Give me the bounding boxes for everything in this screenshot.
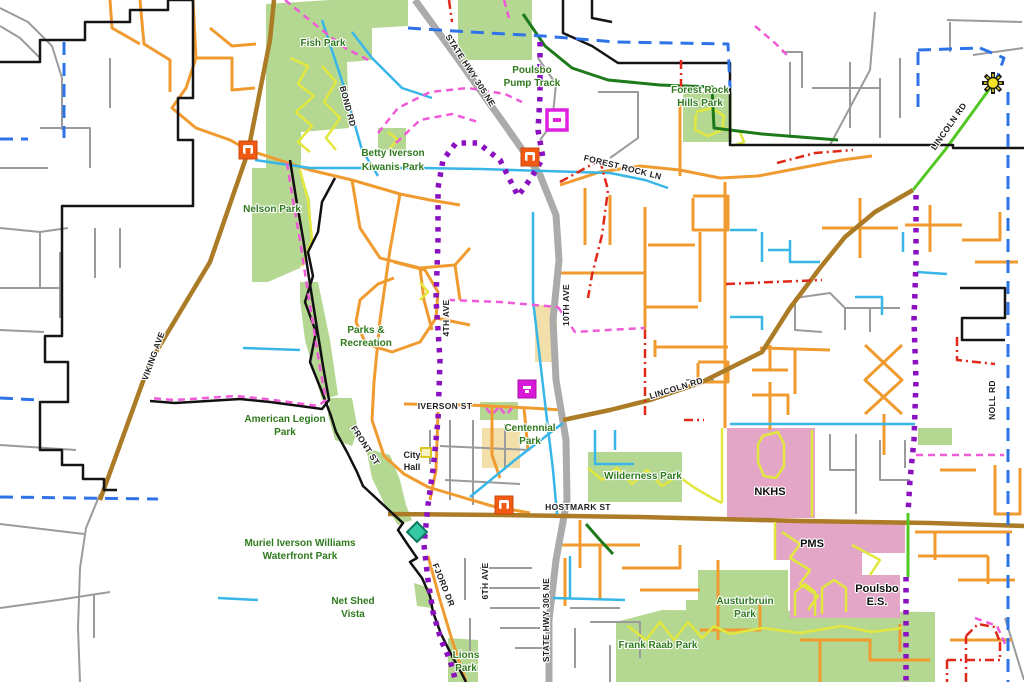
map-label-10th-ave: 10TH AVE <box>561 284 571 326</box>
map-label-pump-track: Pump Track <box>504 78 561 89</box>
map-label-city: City <box>403 450 420 460</box>
map-label-park: Park <box>734 609 756 620</box>
map-label-park: Park <box>455 663 477 674</box>
map-label-wilderness-park: Wilderness Park <box>604 471 682 482</box>
map-label-betty-iverson: Betty Iverson <box>361 148 424 159</box>
map-label-front-st: FRONT ST <box>349 424 382 468</box>
map-label-frank-raab-park: Frank Raab Park <box>619 640 698 651</box>
map-label-parks-: Parks & <box>347 325 384 336</box>
map-label-poulsbo: Poulsbo <box>855 583 899 595</box>
map-canvas: Fish ParkPoulsboPump TrackForest RockHil… <box>0 0 1024 682</box>
map-label-pms: PMS <box>800 538 824 550</box>
sun-icon <box>982 72 1004 94</box>
map-label-waterfront-park: Waterfront Park <box>263 551 338 562</box>
map-label-recreation: Recreation <box>340 338 392 349</box>
map-label-net-shed: Net Shed <box>331 596 374 607</box>
map-label-muriel-iverson-williams: Muriel Iverson Williams <box>244 538 355 549</box>
map-label-vista: Vista <box>341 609 365 620</box>
map-label-centennial: Centennial <box>504 423 555 434</box>
building-yellow-icon <box>421 448 431 457</box>
map-label-iverson-st: IVERSON ST <box>418 401 473 411</box>
map-label-austurbruin: Austurbruin <box>716 596 773 607</box>
map-label-nkhs: NKHS <box>754 486 785 498</box>
marker-magenta-outline-icon <box>547 110 567 130</box>
map-label-poulsbo: Poulsbo <box>512 65 551 76</box>
facility-orange-icon <box>239 141 257 159</box>
map-label-forest-rock: Forest Rock <box>671 85 729 96</box>
map-label-nelson-park: Nelson Park <box>243 204 301 215</box>
map-label-kiwanis-park: Kiwanis Park <box>362 162 425 173</box>
map-label-lincoln-rd: LINCOLN RD <box>648 375 704 401</box>
facility-orange-icon <box>495 496 513 514</box>
map-label-fish-park: Fish Park <box>300 38 345 49</box>
facility-orange-icon <box>521 148 539 166</box>
map-label-american-legion: American Legion <box>244 414 325 425</box>
map-label-lions: Lions <box>453 650 480 661</box>
map-label-park: Park <box>519 436 541 447</box>
marker-magenta-filled-icon <box>518 380 536 398</box>
map-label-hills-park: Hills Park <box>677 98 723 109</box>
road-bright-green <box>908 84 993 577</box>
map-label-noll-rd: NOLL RD <box>987 380 997 420</box>
map-label-park: Park <box>274 427 296 438</box>
poulsbo-parks-trails-map: Fish ParkPoulsboPump TrackForest RockHil… <box>0 0 1024 682</box>
map-label-state-hwy-305-ne: STATE HWY 305 NE <box>541 578 551 662</box>
map-label-viking-ave: VIKING AVE <box>140 330 167 382</box>
map-label-6th-ave: 6TH AVE <box>480 562 490 599</box>
map-label-hostmark-st: HOSTMARK ST <box>545 502 611 512</box>
map-label-hall: Hall <box>404 462 421 472</box>
map-label-e-s-: E.S. <box>867 596 888 608</box>
map-label-4th-ave: 4TH AVE <box>441 299 451 336</box>
